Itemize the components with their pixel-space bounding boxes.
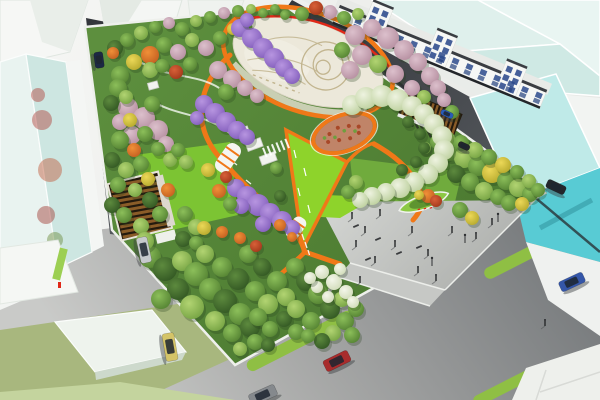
tree: [267, 271, 287, 291]
tree: [126, 54, 142, 70]
tree: [205, 311, 225, 331]
tree: [171, 143, 185, 157]
tree: [218, 7, 230, 19]
rendering-canvas: [0, 0, 600, 400]
tree: [204, 11, 216, 23]
tree: [116, 207, 132, 223]
tree: [369, 55, 387, 73]
tree: [227, 268, 249, 290]
tree: [223, 197, 237, 211]
tree: [212, 184, 226, 198]
tree: [309, 1, 323, 15]
tree: [120, 33, 134, 47]
tree: [249, 308, 267, 326]
tree: [240, 13, 254, 27]
tree: [515, 197, 529, 211]
tree: [410, 156, 422, 168]
tree: [430, 195, 442, 207]
tree: [151, 142, 165, 156]
tree: [142, 192, 158, 208]
tree: [284, 68, 300, 84]
tree: [341, 185, 355, 199]
tree: [352, 45, 372, 65]
tree: [402, 116, 414, 128]
tree: [341, 61, 359, 79]
park-masterplan-rendering: [0, 0, 600, 400]
tree: [218, 84, 234, 100]
tree: [198, 40, 214, 56]
pedestrian-head: [379, 209, 381, 211]
pedestrian-head: [359, 276, 361, 278]
tree: [111, 131, 129, 149]
tree: [179, 155, 193, 169]
tree: [137, 126, 153, 142]
pedestrian-head: [364, 226, 366, 228]
tree: [437, 93, 451, 107]
tree: [201, 163, 215, 177]
tree: [334, 42, 350, 58]
tree: [334, 263, 346, 275]
tree: [183, 57, 197, 71]
tree: [287, 232, 297, 242]
tree: [274, 190, 286, 202]
tree: [128, 183, 142, 197]
pedestrian-head: [351, 212, 353, 214]
tree: [409, 53, 427, 71]
tree: [418, 142, 430, 154]
tree: [262, 321, 278, 337]
tree: [304, 272, 316, 284]
tree: [414, 190, 424, 200]
tree: [196, 245, 214, 263]
tree: [467, 142, 483, 158]
tree: [239, 129, 255, 145]
tree: [414, 128, 426, 140]
tree: [133, 156, 149, 172]
tree: [234, 232, 246, 244]
tree: [213, 31, 227, 45]
tree: [481, 149, 497, 165]
pedestrian-head: [427, 249, 429, 251]
tree: [510, 165, 524, 179]
tree: [287, 300, 305, 318]
tree: [386, 65, 404, 83]
pedestrian-head: [411, 226, 413, 228]
tree: [246, 4, 256, 14]
tree: [531, 183, 545, 197]
tree: [220, 171, 232, 183]
lamp-head: [431, 257, 433, 259]
tree: [270, 4, 280, 14]
tree: [323, 5, 337, 19]
tree: [347, 296, 359, 308]
car-cabin: [96, 55, 103, 64]
tree: [190, 111, 204, 125]
tree: [185, 33, 199, 47]
tree: [133, 218, 149, 234]
tree: [190, 15, 202, 27]
tree: [119, 90, 133, 104]
tree: [345, 25, 365, 45]
tree: [280, 10, 290, 20]
tree: [495, 157, 511, 173]
tree: [253, 258, 271, 276]
tree: [141, 172, 155, 186]
tree: [170, 44, 186, 60]
tree: [161, 183, 175, 197]
lamp-head: [464, 234, 466, 236]
tree: [155, 59, 169, 73]
tree: [255, 216, 271, 232]
tree: [175, 22, 189, 36]
tree: [152, 206, 168, 222]
red-mark: [58, 282, 61, 288]
tree: [118, 162, 134, 178]
tree: [123, 113, 137, 127]
tree: [250, 240, 262, 252]
tree: [465, 211, 479, 225]
pedestrian-head: [355, 240, 357, 242]
tree: [223, 324, 241, 342]
pedestrian-head: [417, 266, 419, 268]
pedestrian-head: [451, 226, 453, 228]
tree: [233, 342, 247, 356]
tree: [110, 177, 126, 193]
tree: [352, 8, 364, 20]
tree: [177, 206, 193, 222]
pedestrian-head: [435, 274, 437, 276]
pedestrian-head: [394, 240, 396, 242]
tree: [315, 265, 329, 279]
tree: [127, 143, 141, 157]
tree: [501, 195, 517, 211]
tree: [274, 219, 286, 231]
tree: [270, 162, 282, 174]
tree: [180, 295, 204, 319]
tree: [247, 334, 263, 350]
pedestrian-head: [544, 319, 546, 321]
tree: [175, 231, 191, 247]
tree: [169, 65, 183, 79]
tree: [163, 17, 175, 29]
tree: [104, 152, 120, 168]
tree: [250, 89, 264, 103]
tree: [141, 46, 159, 64]
tree: [301, 329, 315, 343]
tree: [144, 96, 160, 112]
pedestrian-head: [475, 232, 477, 234]
tree: [261, 338, 275, 352]
tree: [197, 221, 211, 235]
pedestrian-head: [374, 256, 376, 258]
tree: [134, 26, 148, 40]
tree: [103, 95, 119, 111]
tree: [149, 21, 161, 33]
tree: [258, 8, 268, 18]
tree: [337, 11, 351, 25]
tree: [295, 7, 309, 21]
tree: [344, 327, 360, 343]
tree: [156, 37, 172, 53]
lamp-head: [497, 213, 499, 215]
tree: [151, 289, 171, 309]
tree: [107, 47, 119, 59]
tree: [302, 312, 320, 330]
tree: [216, 226, 228, 238]
pedestrian-head: [491, 218, 493, 220]
tree: [396, 164, 408, 176]
